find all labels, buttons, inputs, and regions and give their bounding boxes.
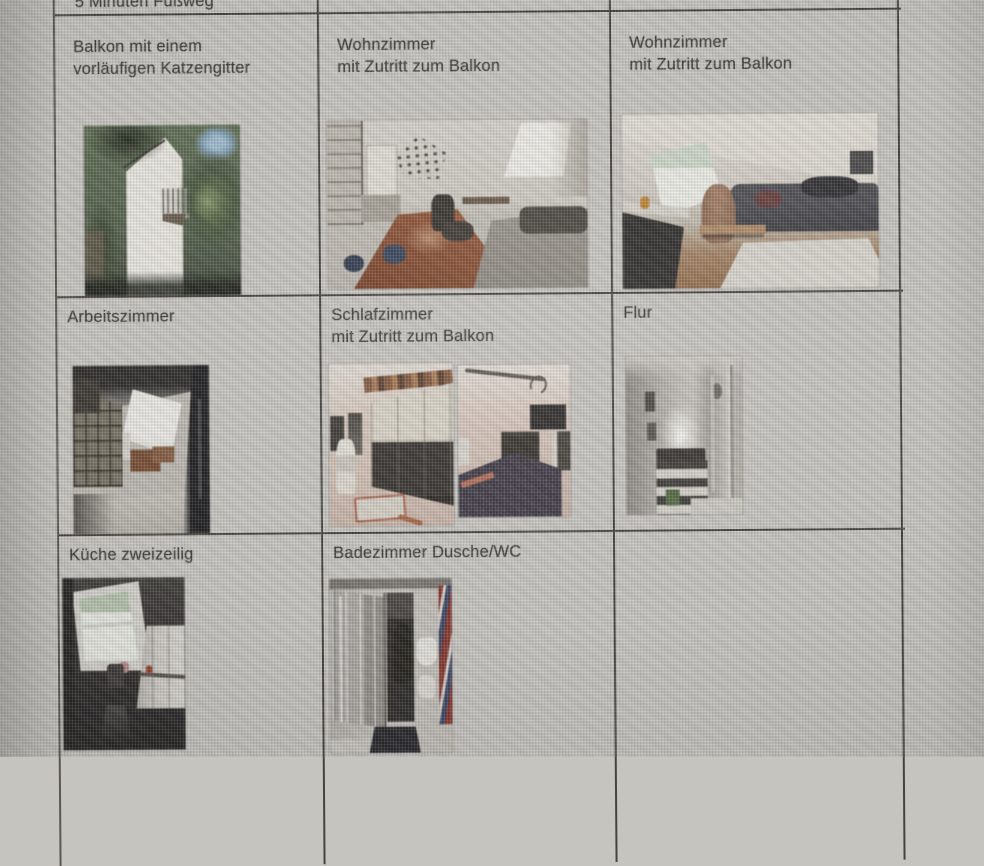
label-flur: Flur xyxy=(613,292,899,325)
photo-flur xyxy=(626,356,743,515)
label-wohnzimmer-2: Wohnzimmer mit Zutritt zum Balkon xyxy=(611,10,897,77)
label-top-col1: 5 Minuten Fußweg xyxy=(54,0,316,14)
cell-wohnzimmer-1: Wohnzimmer mit Zutritt zum Balkon xyxy=(319,12,613,294)
photo-schlafzimmer-links xyxy=(329,363,454,526)
doc-table: 5 Minuten Fußweg Balkon mit einem vorläu… xyxy=(52,0,907,866)
cell-top-col2 xyxy=(318,0,610,12)
photo-badezimmer xyxy=(329,578,452,753)
photo-wohnzimmer-2 xyxy=(622,113,879,289)
cell-top-col3 xyxy=(610,0,898,10)
photo-schlafzimmer-rechts xyxy=(458,364,571,517)
table-row-1: Balkon mit einem vorläufigen Katzengitte… xyxy=(55,10,903,299)
cell-balkon: Balkon mit einem vorläufigen Katzengitte… xyxy=(55,14,321,296)
cell-schlafzimmer: Schlafzimmer mit Zutritt zum Balkon xyxy=(321,294,615,532)
photo-balkon xyxy=(84,125,241,296)
label-arbeitszimmer: Arbeitszimmer xyxy=(57,296,319,328)
table-row-2: Arbeitszimmer Schlafzimmer mit Zutritt xyxy=(57,292,905,537)
photo-arbeitszimmer xyxy=(73,365,210,534)
photo-wohnzimmer-1 xyxy=(327,119,588,289)
cell-kueche: Küche zweizeilig xyxy=(59,534,326,866)
cell-badezimmer: Badezimmer Dusche/WC xyxy=(323,532,618,864)
cell-flur: Flur xyxy=(613,292,903,530)
label-wohnzimmer-1: Wohnzimmer mit Zutritt zum Balkon xyxy=(319,12,609,79)
label-kueche: Küche zweizeilig xyxy=(59,534,321,566)
label-schlafzimmer: Schlafzimmer mit Zutritt zum Balkon xyxy=(321,294,611,349)
label-empty xyxy=(615,530,901,540)
screen-photo: 5 Minuten Fußweg Balkon mit einem vorläu… xyxy=(0,0,984,757)
label-balkon: Balkon mit einem vorläufigen Katzengitte… xyxy=(55,14,317,81)
cell-top-col1: 5 Minuten Fußweg xyxy=(54,0,318,14)
cell-arbeitszimmer: Arbeitszimmer xyxy=(57,296,323,534)
label-badezimmer: Badezimmer Dusche/WC xyxy=(323,532,613,565)
cell-empty xyxy=(615,530,906,862)
photo-kueche xyxy=(62,577,185,750)
table-row-3: Küche zweizeilig Badezimmer Dusche/WC xyxy=(59,530,908,866)
cell-wohnzimmer-2: Wohnzimmer mit Zutritt zum Balkon xyxy=(611,10,901,292)
